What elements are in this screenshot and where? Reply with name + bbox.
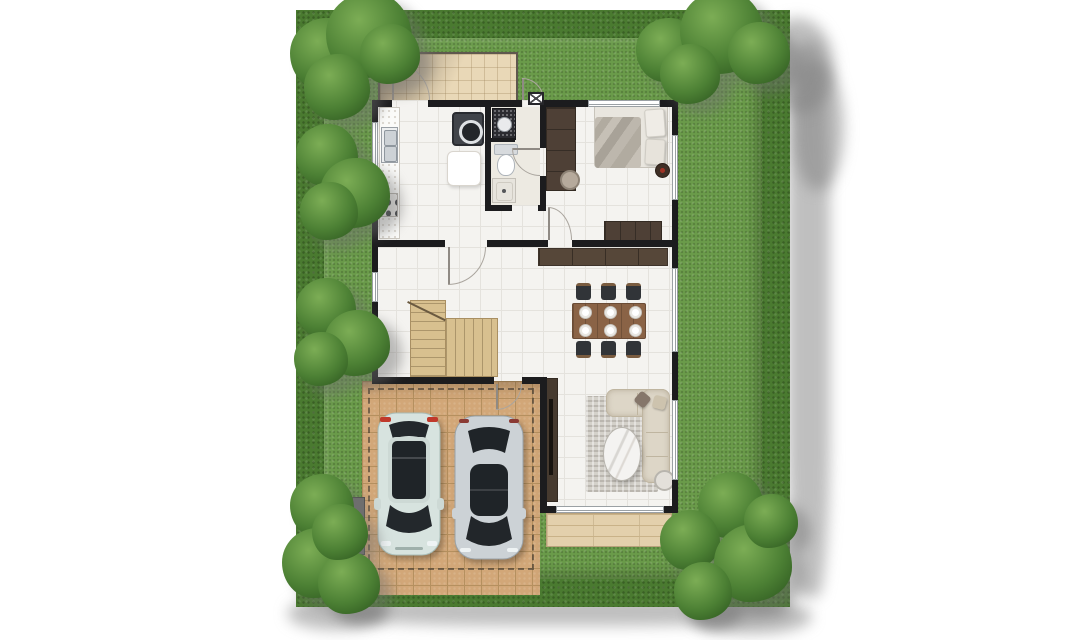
stair-landing xyxy=(445,318,498,377)
sofa-cushion-line xyxy=(646,456,668,457)
bathroom-partition xyxy=(491,138,515,142)
wall-living-carport xyxy=(540,377,547,513)
place-setting xyxy=(579,306,592,319)
tree-foliage xyxy=(300,182,358,240)
place-setting xyxy=(604,306,617,319)
dining-chair xyxy=(601,341,616,358)
shower-tray xyxy=(492,178,516,203)
place-setting xyxy=(629,324,642,337)
wall xyxy=(572,240,678,247)
coffee-table xyxy=(603,427,641,481)
wall xyxy=(428,100,522,107)
tv-screen xyxy=(549,399,553,475)
washing-machine xyxy=(452,112,484,146)
tree xyxy=(636,0,786,117)
tree xyxy=(294,276,402,388)
tree-foliage xyxy=(744,494,798,548)
tree-foliage xyxy=(304,54,370,120)
dining-chair xyxy=(601,283,616,300)
bedside-stool xyxy=(655,163,670,178)
tree xyxy=(290,0,430,134)
tree xyxy=(282,468,400,618)
vanity-counter xyxy=(492,108,516,140)
tree xyxy=(654,470,794,622)
car-sedan xyxy=(452,412,526,562)
wall xyxy=(672,352,678,400)
tree xyxy=(296,118,406,238)
wall xyxy=(672,200,678,268)
sofa-cushion-line xyxy=(646,432,668,433)
living-window-right xyxy=(672,400,678,480)
dining-chair xyxy=(626,283,641,300)
place-setting xyxy=(629,306,642,319)
tree-foliage xyxy=(312,504,368,560)
wall-kitchen-bath xyxy=(485,100,491,211)
place-setting xyxy=(579,324,592,337)
tree-foliage xyxy=(360,24,420,84)
floor-plan-canvas xyxy=(0,0,1080,640)
place-setting xyxy=(604,324,617,337)
tree-foliage xyxy=(728,22,790,84)
tree-foliage xyxy=(674,562,732,620)
bedroom-dresser xyxy=(604,221,662,241)
kitchen-prep-table xyxy=(447,151,481,186)
toilet-bowl xyxy=(497,154,515,176)
dining-window-right xyxy=(672,268,678,352)
ac-condenser-unit xyxy=(528,92,544,105)
bedroom-window-right xyxy=(672,135,678,200)
living-sliding-door xyxy=(556,506,664,513)
bed-pillow-bottom xyxy=(644,138,665,165)
wall xyxy=(372,240,445,247)
bed-blanket xyxy=(595,117,641,168)
sideboard xyxy=(538,248,668,266)
dining-chair xyxy=(576,341,591,358)
wall xyxy=(487,240,548,247)
tree-foliage xyxy=(660,44,720,104)
vanity-basin xyxy=(497,117,512,132)
shower-drain xyxy=(502,189,506,193)
tree-foliage xyxy=(318,552,380,614)
desk-chair xyxy=(560,170,580,190)
tree-foliage xyxy=(660,510,720,570)
dining-chair xyxy=(576,283,591,300)
bedside-stool-center xyxy=(660,168,665,173)
tree-foliage xyxy=(294,332,348,386)
wall-bath-bedroom xyxy=(540,176,546,211)
wall-bath-bedroom xyxy=(540,100,546,148)
washer-drum xyxy=(459,120,483,144)
dining-chair xyxy=(626,341,641,358)
wall xyxy=(542,100,588,107)
